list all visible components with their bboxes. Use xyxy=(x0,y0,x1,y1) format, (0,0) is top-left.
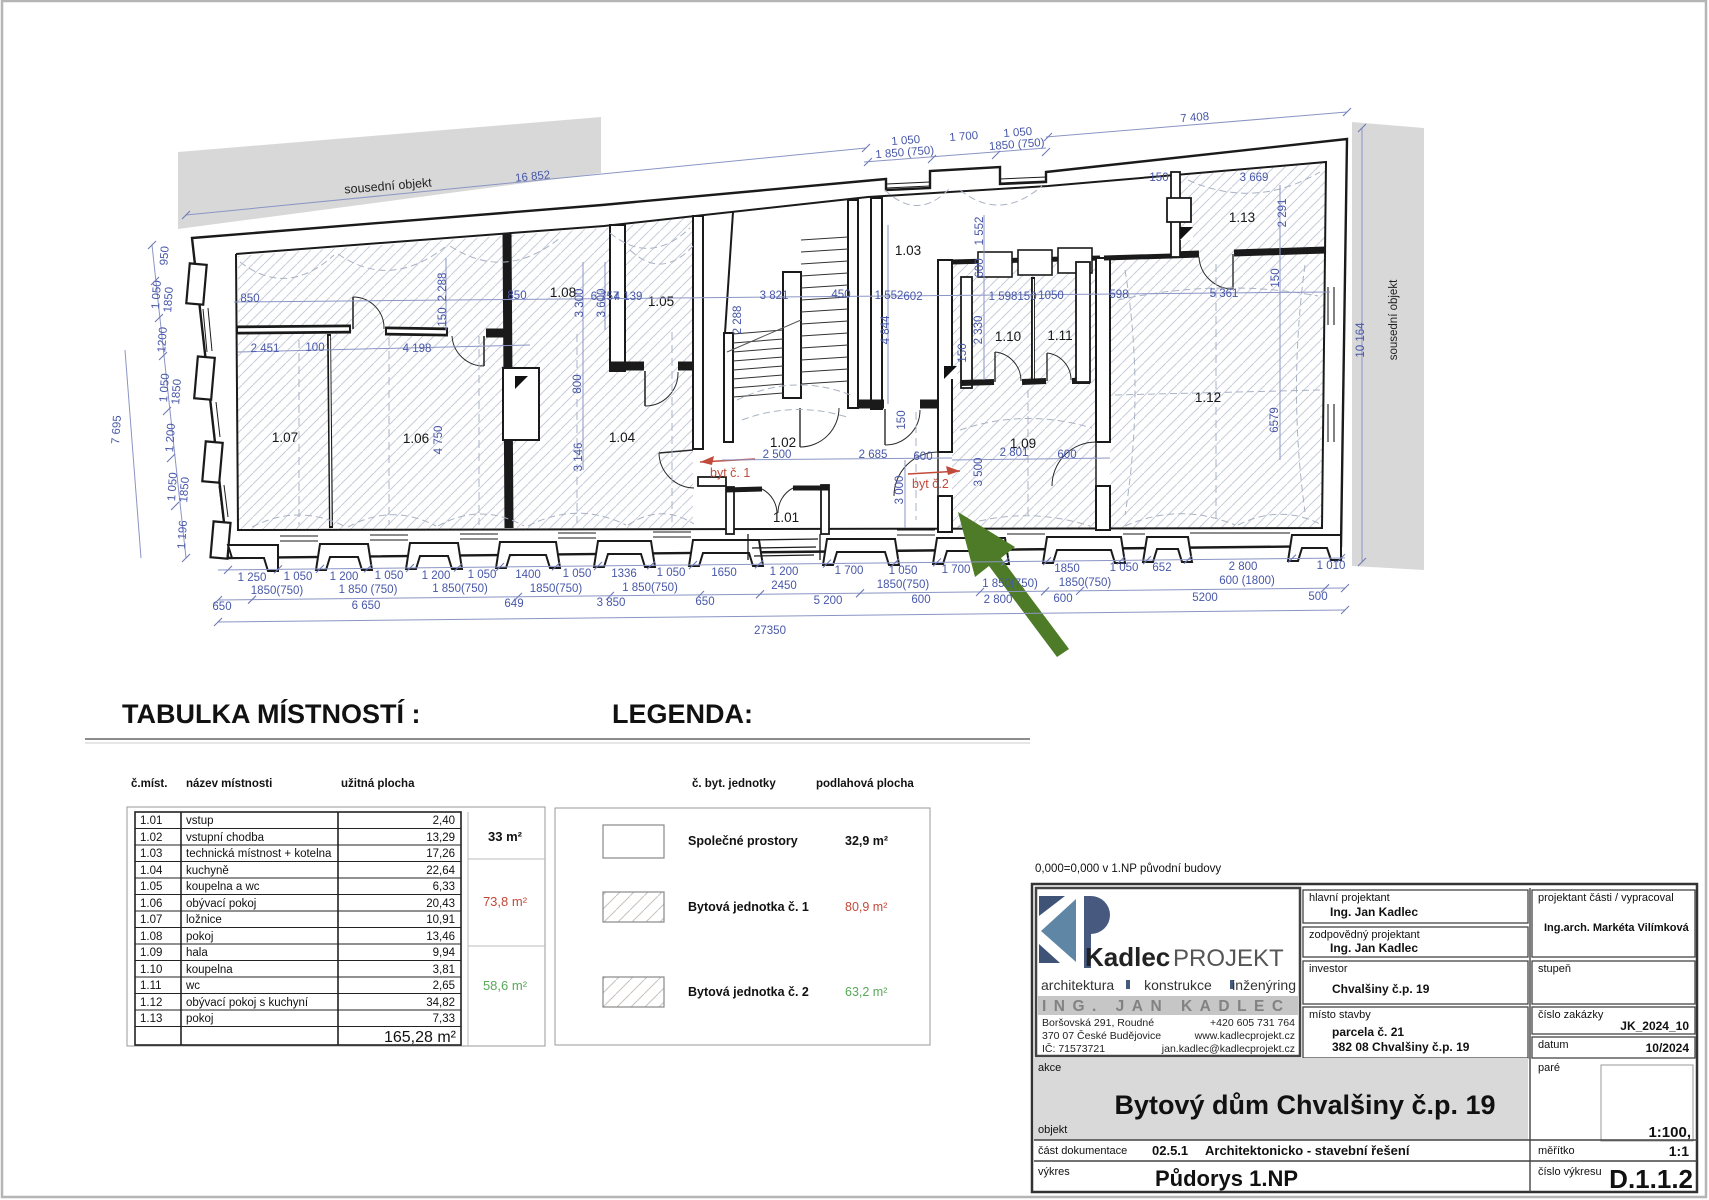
svg-text:27350: 27350 xyxy=(754,625,786,637)
svg-text:1200: 1200 xyxy=(156,327,170,353)
svg-text:370 07 České Budějovice: 370 07 České Budějovice xyxy=(1042,1029,1161,1042)
svg-text:150: 150 xyxy=(957,343,969,362)
svg-text:7 695: 7 695 xyxy=(110,415,124,445)
svg-text:2,40: 2,40 xyxy=(433,815,455,827)
svg-text:1 598: 1 598 xyxy=(989,291,1018,303)
svg-text:1.11: 1.11 xyxy=(140,980,162,992)
svg-text:1850(750): 1850(750) xyxy=(1059,577,1112,589)
svg-text:1 850(750): 1 850(750) xyxy=(432,583,488,595)
svg-text:užitná plocha: užitná plocha xyxy=(341,778,415,790)
svg-text:150: 150 xyxy=(1017,291,1036,303)
svg-text:stupeň: stupeň xyxy=(1538,963,1571,975)
svg-text:Bytová jednotka č. 2: Bytová jednotka č. 2 xyxy=(688,985,809,999)
svg-text:č.míst.: č.míst. xyxy=(131,778,167,790)
svg-text:podlahová plocha: podlahová plocha xyxy=(816,778,914,790)
svg-text:598: 598 xyxy=(1109,289,1128,301)
svg-text:Boršovská 291, Roudné: Boršovská 291, Roudné xyxy=(1042,1017,1154,1029)
svg-text:1850 (750): 1850 (750) xyxy=(989,137,1046,153)
svg-text:1850: 1850 xyxy=(162,287,176,313)
svg-text:PROJEKT: PROJEKT xyxy=(1173,945,1284,972)
svg-text:1.11: 1.11 xyxy=(1047,328,1072,343)
svg-text:Společné prostory: Společné prostory xyxy=(688,834,798,848)
svg-text:600: 600 xyxy=(911,594,930,606)
svg-text:1 850(750): 1 850(750) xyxy=(622,582,678,594)
svg-text:datum: datum xyxy=(1538,1039,1569,1051)
svg-text:1.07: 1.07 xyxy=(140,914,162,926)
svg-text:3 146: 3 146 xyxy=(573,443,585,472)
svg-text:2 288: 2 288 xyxy=(437,273,449,302)
svg-text:1 050: 1 050 xyxy=(1110,562,1139,574)
svg-text:1 050: 1 050 xyxy=(284,571,313,583)
svg-text:1.08: 1.08 xyxy=(550,285,576,300)
svg-text:1 050: 1 050 xyxy=(889,565,918,577)
svg-text:600: 600 xyxy=(913,451,932,463)
svg-text:ložnice: ložnice xyxy=(186,914,222,926)
svg-text:4 750: 4 750 xyxy=(433,426,445,455)
svg-text:1.13: 1.13 xyxy=(140,1013,162,1025)
svg-text:pokoj: pokoj xyxy=(186,931,214,943)
svg-text:1.02: 1.02 xyxy=(770,435,796,450)
svg-text:IČ: 71573721: IČ: 71573721 xyxy=(1042,1042,1105,1055)
svg-text:1400: 1400 xyxy=(515,569,541,581)
svg-text:číslo výkresu: číslo výkresu xyxy=(1538,1166,1602,1178)
svg-text:1 200: 1 200 xyxy=(330,571,359,583)
svg-text:název místnosti: název místnosti xyxy=(186,778,272,790)
svg-text:jan.kadlec@kadlecprojekt.cz: jan.kadlec@kadlecprojekt.cz xyxy=(1161,1043,1295,1055)
svg-text:20,43: 20,43 xyxy=(426,898,455,910)
svg-text:5 200: 5 200 xyxy=(814,595,843,607)
svg-text:1 200: 1 200 xyxy=(422,570,451,582)
svg-text:1 010: 1 010 xyxy=(1317,560,1346,572)
svg-text:150: 150 xyxy=(437,307,449,326)
svg-text:1.07: 1.07 xyxy=(272,430,298,445)
svg-text:hlavní projektant: hlavní projektant xyxy=(1309,892,1390,904)
svg-text:13,29: 13,29 xyxy=(426,832,455,844)
svg-text:1 200: 1 200 xyxy=(770,566,799,578)
svg-text:Bytová jednotka č. 1: Bytová jednotka č. 1 xyxy=(688,900,809,914)
svg-text:2 685: 2 685 xyxy=(859,449,888,461)
svg-text:projektant části / vypracoval: projektant části / vypracoval xyxy=(1538,892,1674,904)
svg-text:80,9 m²: 80,9 m² xyxy=(845,900,887,914)
svg-text:Ing. Jan Kadlec: Ing. Jan Kadlec xyxy=(1330,941,1418,955)
svg-text:1 050: 1 050 xyxy=(468,569,497,581)
svg-text:vstupní chodba: vstupní chodba xyxy=(186,832,265,844)
svg-text:2 291: 2 291 xyxy=(1277,199,1289,228)
svg-text:1.06: 1.06 xyxy=(140,898,162,910)
svg-text:1 552: 1 552 xyxy=(875,290,904,302)
svg-text:450: 450 xyxy=(831,289,850,301)
svg-text:150: 150 xyxy=(896,410,908,429)
svg-text:byt č. 1: byt č. 1 xyxy=(710,466,750,480)
svg-text:1.04: 1.04 xyxy=(140,865,163,877)
svg-text:architektura: architektura xyxy=(1041,977,1114,993)
svg-text:500: 500 xyxy=(1308,591,1327,603)
svg-text:1336: 1336 xyxy=(611,568,637,580)
svg-text:63,2 m²: 63,2 m² xyxy=(845,985,887,999)
svg-text:6 650: 6 650 xyxy=(352,600,381,612)
svg-text:akce: akce xyxy=(1038,1062,1061,1074)
svg-text:místo stavby: místo stavby xyxy=(1309,1009,1371,1021)
svg-text:1.12: 1.12 xyxy=(1195,390,1221,405)
svg-text:obývací pokoj: obývací pokoj xyxy=(186,898,256,910)
svg-text:1 700: 1 700 xyxy=(942,564,971,576)
svg-text:2 801: 2 801 xyxy=(1000,447,1029,459)
svg-text:1850: 1850 xyxy=(178,477,192,503)
svg-text:1.03: 1.03 xyxy=(895,243,921,258)
svg-text:Bytový dům Chvalšiny č.p. 19: Bytový dům Chvalšiny č.p. 19 xyxy=(1114,1090,1495,1120)
svg-text:hala: hala xyxy=(186,947,208,959)
svg-text:1 552: 1 552 xyxy=(974,217,986,246)
svg-text:vstup: vstup xyxy=(186,815,214,827)
svg-text:3 850: 3 850 xyxy=(597,597,626,609)
svg-text:800: 800 xyxy=(572,374,584,393)
svg-text:č. byt. jednotky: č. byt. jednotky xyxy=(692,778,776,790)
svg-text:6,33: 6,33 xyxy=(433,881,455,893)
svg-text:1.06: 1.06 xyxy=(403,431,429,446)
svg-text:objekt: objekt xyxy=(1038,1124,1067,1136)
svg-text:1.04: 1.04 xyxy=(609,430,636,445)
svg-text:2 288: 2 288 xyxy=(732,306,744,335)
svg-text:3 669: 3 669 xyxy=(1240,172,1269,184)
svg-text:649: 649 xyxy=(504,598,523,610)
svg-text:1850(750): 1850(750) xyxy=(877,579,930,591)
svg-text:3,81: 3,81 xyxy=(433,964,455,976)
svg-text:1850(750): 1850(750) xyxy=(530,583,583,595)
svg-text:58,6 m²: 58,6 m² xyxy=(483,978,528,993)
svg-text:1 250: 1 250 xyxy=(238,572,267,584)
svg-text:600: 600 xyxy=(974,258,986,277)
svg-text:výkres: výkres xyxy=(1038,1166,1070,1178)
svg-text:3 821: 3 821 xyxy=(760,290,789,302)
svg-text:1:100,: 1:100, xyxy=(1648,1124,1691,1141)
svg-text:1.09: 1.09 xyxy=(140,947,162,959)
svg-text:950: 950 xyxy=(158,246,171,266)
svg-text:paré: paré xyxy=(1538,1062,1560,1074)
svg-text:10 164: 10 164 xyxy=(1355,322,1367,358)
svg-text:2 800: 2 800 xyxy=(984,594,1013,606)
svg-text:33 m²: 33 m² xyxy=(488,829,523,844)
svg-text:inženýring: inženýring xyxy=(1232,977,1296,993)
svg-text:4 844: 4 844 xyxy=(880,315,892,344)
svg-text:LEGENDA:: LEGENDA: xyxy=(612,699,753,729)
svg-text:ING. JAN KADLEC: ING. JAN KADLEC xyxy=(1042,998,1291,1015)
svg-text:1 050: 1 050 xyxy=(375,570,404,582)
svg-text:obývací pokoj s kuchyní: obývací pokoj s kuchyní xyxy=(186,997,309,1009)
svg-text:22,64: 22,64 xyxy=(426,865,455,877)
svg-text:73,8 m²: 73,8 m² xyxy=(483,894,528,909)
svg-text:část dokumentace: část dokumentace xyxy=(1038,1145,1127,1157)
svg-text:600: 600 xyxy=(1053,593,1072,605)
svg-text:34,82: 34,82 xyxy=(426,997,455,1009)
svg-text:1 850 (750): 1 850 (750) xyxy=(339,584,398,596)
svg-text:6579: 6579 xyxy=(1269,407,1281,433)
svg-text:5 361: 5 361 xyxy=(1210,288,1239,300)
svg-text:850: 850 xyxy=(240,293,259,305)
svg-text:+420 605 731 764: +420 605 731 764 xyxy=(1210,1017,1295,1029)
svg-text:Chvalšiny č.p. 19: Chvalšiny č.p. 19 xyxy=(1332,982,1430,996)
svg-text:Půdorys 1.NP: Půdorys 1.NP xyxy=(1155,1166,1298,1191)
svg-text:parcela č. 21: parcela č. 21 xyxy=(1332,1025,1404,1039)
svg-text:1.02: 1.02 xyxy=(140,832,162,844)
svg-text:1:1: 1:1 xyxy=(1669,1143,1689,1159)
svg-text:3 600: 3 600 xyxy=(596,289,608,318)
svg-text:650: 650 xyxy=(695,596,714,608)
svg-text:100: 100 xyxy=(305,342,324,354)
svg-text:1850: 1850 xyxy=(170,379,184,405)
svg-text:pokoj: pokoj xyxy=(186,1013,214,1025)
svg-text:32,9 m²: 32,9 m² xyxy=(845,834,888,848)
svg-text:1 700: 1 700 xyxy=(949,130,979,144)
svg-text:16 852: 16 852 xyxy=(515,169,551,184)
svg-text:byt č.2: byt č.2 xyxy=(912,477,949,491)
svg-text:10/2024: 10/2024 xyxy=(1646,1041,1690,1055)
svg-text:1.01: 1.01 xyxy=(140,815,162,827)
svg-text:3 000: 3 000 xyxy=(894,476,906,505)
svg-text:652: 652 xyxy=(1152,562,1171,574)
svg-text:850: 850 xyxy=(507,290,526,302)
svg-text:382 08 Chvalšiny č.p. 19: 382 08 Chvalšiny č.p. 19 xyxy=(1332,1040,1470,1054)
svg-text:číslo zakázky: číslo zakázky xyxy=(1538,1009,1604,1021)
svg-text:1 050: 1 050 xyxy=(657,567,686,579)
svg-text:wc: wc xyxy=(185,980,200,992)
svg-text:investor: investor xyxy=(1309,963,1348,975)
svg-text:7 408: 7 408 xyxy=(1180,111,1210,125)
svg-text:konstrukce: konstrukce xyxy=(1144,977,1212,993)
svg-text:4 198: 4 198 xyxy=(403,343,432,355)
svg-text:3 500: 3 500 xyxy=(973,458,985,487)
svg-text:165,28 m²: 165,28 m² xyxy=(384,1029,457,1046)
svg-text:1.08: 1.08 xyxy=(140,931,162,943)
svg-text:www.kadlecprojekt.cz: www.kadlecprojekt.cz xyxy=(1194,1030,1295,1042)
svg-text:koupelna a wc: koupelna a wc xyxy=(186,881,260,893)
svg-text:zodpovědný projektant: zodpovědný projektant xyxy=(1309,929,1420,941)
svg-text:2 330: 2 330 xyxy=(973,316,985,345)
svg-text:Architektonicko - stavební řeš: Architektonicko - stavební řešení xyxy=(1205,1143,1410,1158)
svg-text:1.13: 1.13 xyxy=(1229,210,1255,225)
svg-text:1 050: 1 050 xyxy=(563,568,592,580)
svg-text:1.01: 1.01 xyxy=(773,510,799,525)
svg-text:1.05: 1.05 xyxy=(140,881,162,893)
svg-text:1 850(750): 1 850(750) xyxy=(982,578,1038,590)
svg-text:měřítko: měřítko xyxy=(1538,1145,1575,1157)
svg-text:602: 602 xyxy=(903,291,922,303)
svg-text:1.10: 1.10 xyxy=(995,329,1021,344)
svg-text:1850(750): 1850(750) xyxy=(251,585,304,597)
svg-text:sousední objekt: sousední objekt xyxy=(1388,279,1400,360)
svg-text:5200: 5200 xyxy=(1192,592,1218,604)
svg-text:D.1.1.2: D.1.1.2 xyxy=(1609,1164,1693,1194)
svg-text:0,000=0,000 v 1.NP původní bud: 0,000=0,000 v 1.NP původní budovy xyxy=(1035,863,1221,875)
svg-text:2 800: 2 800 xyxy=(1229,561,1258,573)
svg-text:2,65: 2,65 xyxy=(433,980,455,992)
svg-text:10,91: 10,91 xyxy=(426,914,455,926)
svg-text:1 200: 1 200 xyxy=(164,423,178,453)
svg-text:1.03: 1.03 xyxy=(140,848,162,860)
svg-text:13,46: 13,46 xyxy=(426,931,455,943)
svg-text:1850: 1850 xyxy=(1054,563,1080,575)
svg-text:9,94: 9,94 xyxy=(433,947,456,959)
svg-text:koupelna: koupelna xyxy=(186,964,233,976)
svg-text:2450: 2450 xyxy=(771,580,797,592)
svg-text:Kadlec: Kadlec xyxy=(1085,942,1170,972)
svg-text:1 850 (750): 1 850 (750) xyxy=(875,145,935,162)
svg-text:JK_2024_10: JK_2024_10 xyxy=(1620,1019,1689,1033)
svg-text:1 196: 1 196 xyxy=(176,520,190,550)
svg-text:kuchyně: kuchyně xyxy=(186,865,229,877)
svg-text:2 451: 2 451 xyxy=(251,343,280,355)
svg-text:150: 150 xyxy=(1149,172,1168,184)
svg-text:2 500: 2 500 xyxy=(763,449,792,461)
svg-text:02.5.1: 02.5.1 xyxy=(1152,1143,1188,1158)
svg-text:Ing.arch. Markéta Vilímková: Ing.arch. Markéta Vilímková xyxy=(1544,922,1690,934)
svg-text:150: 150 xyxy=(1270,268,1282,287)
svg-text:technická místnost + kotelna: technická místnost + kotelna xyxy=(186,848,332,860)
svg-text:600 (1800): 600 (1800) xyxy=(1219,575,1275,587)
svg-text:TABULKA MÍSTNOSTÍ :: TABULKA MÍSTNOSTÍ : xyxy=(122,698,420,729)
svg-text:600: 600 xyxy=(1057,449,1076,461)
svg-text:1050: 1050 xyxy=(1038,290,1064,302)
svg-text:3 300: 3 300 xyxy=(574,289,586,318)
svg-text:7,33: 7,33 xyxy=(433,1013,455,1025)
svg-text:4 139: 4 139 xyxy=(614,291,643,303)
svg-text:17,26: 17,26 xyxy=(426,848,455,860)
svg-text:1 700: 1 700 xyxy=(835,565,864,577)
svg-text:1.05: 1.05 xyxy=(648,294,674,309)
svg-text:Ing. Jan Kadlec: Ing. Jan Kadlec xyxy=(1330,905,1418,919)
svg-text:1.10: 1.10 xyxy=(140,964,162,976)
svg-text:1650: 1650 xyxy=(711,567,737,579)
svg-text:1.12: 1.12 xyxy=(140,997,162,1009)
